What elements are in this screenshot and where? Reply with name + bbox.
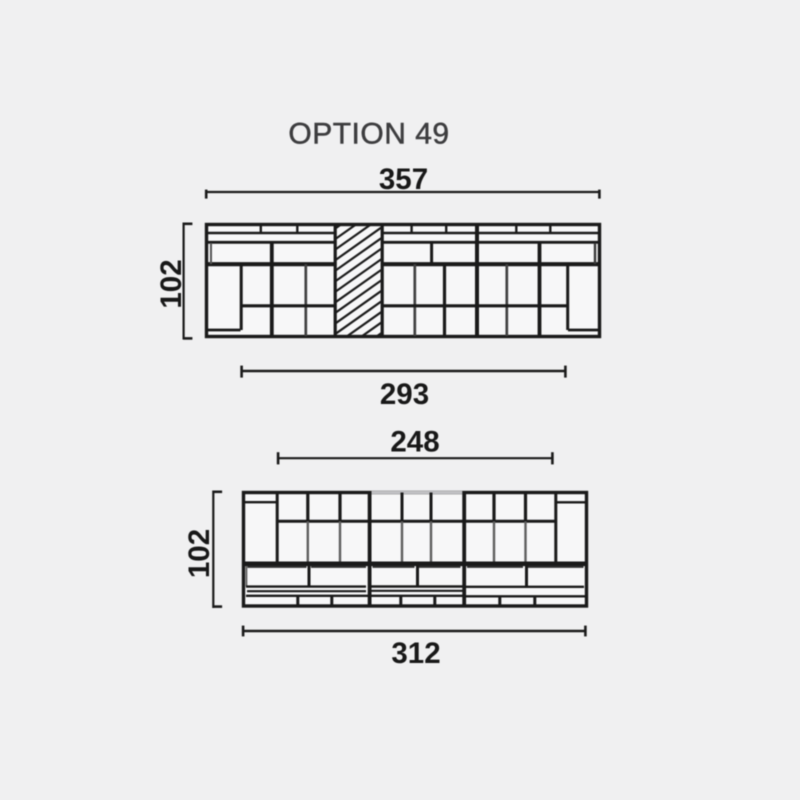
svg-text:293: 293: [380, 378, 429, 411]
svg-text:102: 102: [155, 259, 188, 308]
svg-text:357: 357: [379, 163, 428, 196]
svg-text:312: 312: [391, 637, 440, 670]
svg-text:102: 102: [183, 529, 216, 578]
svg-text:248: 248: [390, 426, 439, 459]
svg-text:OPTION 49: OPTION 49: [288, 118, 449, 151]
